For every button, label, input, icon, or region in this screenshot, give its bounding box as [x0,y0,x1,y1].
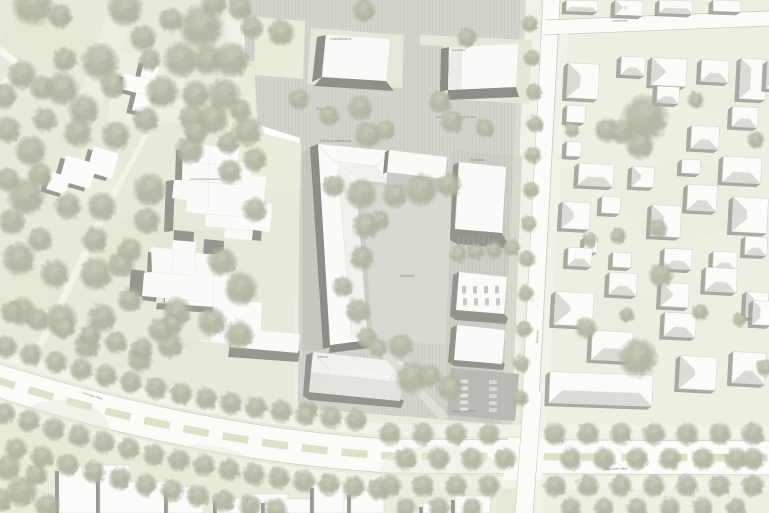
svg-text:Sporthalle: Sporthalle [470,158,485,162]
svg-text:Gemeinschaftsschule: Gemeinschaftsschule [320,139,352,143]
svg-text:Schulbibliothek: Schulbibliothek [330,37,352,41]
svg-text:Lindenweg: Lindenweg [612,18,628,23]
svg-text:Besucherparkplatz: Besucherparkplatz [452,409,476,413]
svg-text:Schulhof: Schulhof [400,274,414,278]
svg-text:Mensa: Mensa [318,355,328,359]
svg-text:Gemeinschaftsgrundschule: Gemeinschaftsgrundschule [190,177,222,181]
svg-text:Schulweg: Schulweg [535,330,540,344]
svg-text:Max-Beier-Allee: Max-Beier-Allee [605,467,628,471]
